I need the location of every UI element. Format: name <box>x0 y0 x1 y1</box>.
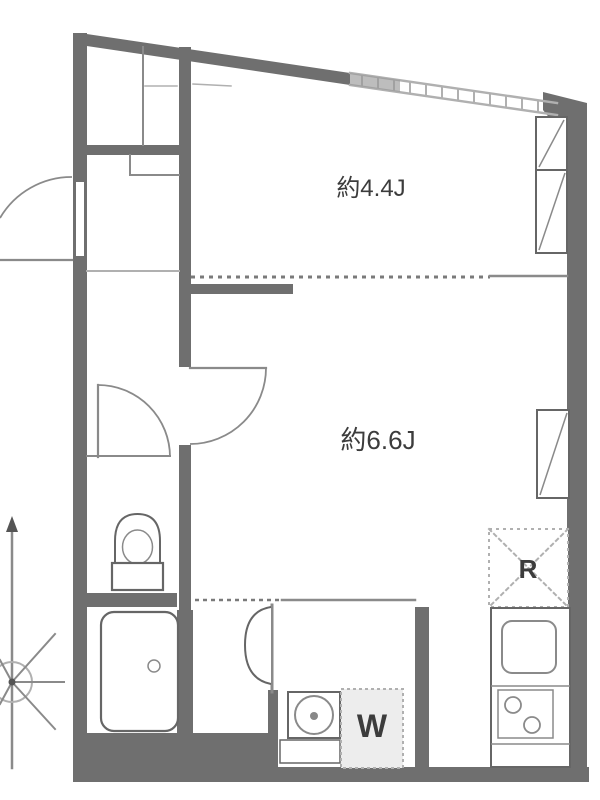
wall-hall-lower <box>179 445 191 610</box>
refrigerator-space: R <box>489 529 568 607</box>
entrance-opening <box>76 182 84 256</box>
floor-plan: W R 約 <box>0 0 600 800</box>
windows <box>536 117 569 498</box>
wall-hall-upper <box>179 47 191 367</box>
toilet <box>112 514 163 590</box>
laundry-sink-drain <box>310 712 318 720</box>
wall-top-slanted <box>80 33 350 85</box>
wall-closet-bottom <box>87 145 179 155</box>
room-door-swing-arc <box>190 368 266 444</box>
wall-washroom-stub <box>268 690 278 768</box>
compass-north-arrow <box>6 516 18 532</box>
toilet-tank <box>112 563 163 590</box>
room-door <box>190 368 266 444</box>
laundry-sink <box>280 692 340 763</box>
window-upper-bottom <box>536 170 567 253</box>
entrance-door <box>0 177 72 260</box>
slanted-window-band <box>350 73 557 115</box>
window-upper-top <box>536 117 567 170</box>
room-label-6-6j: 約6.6J <box>340 425 415 455</box>
slant-window-inner-line <box>350 85 557 115</box>
bathtub <box>101 612 178 731</box>
compass-center-dot <box>9 679 16 686</box>
bathroom <box>101 612 178 731</box>
wall-bath-bottom-block <box>79 733 268 768</box>
beam-line <box>193 84 231 86</box>
window-middle <box>537 410 569 498</box>
floor-plan-canvas: W R 約 <box>0 0 600 800</box>
washer-space: W <box>341 689 403 768</box>
washbasin-bowl <box>245 607 271 684</box>
wall-room-divider-stub <box>188 284 293 294</box>
entrance-door-swing-arc <box>0 177 72 218</box>
laundry-sink-cabinet <box>280 740 340 763</box>
kitchen-counter <box>491 608 570 767</box>
kitchen: R <box>489 529 570 767</box>
doors <box>0 177 266 457</box>
toilet-bowl <box>115 514 160 566</box>
compass <box>0 516 64 768</box>
wall-toilet-bath-divider <box>87 593 177 607</box>
wall-bottom <box>73 767 589 782</box>
wall-left <box>73 33 87 782</box>
wall-kitchen-left <box>415 607 429 767</box>
washer-label: W <box>357 708 388 744</box>
room-label-4-4j: 約4.4J <box>336 175 405 202</box>
toilet-door-swing-arc <box>98 385 170 457</box>
partition-lines <box>87 47 567 600</box>
refrigerator-label: R <box>519 554 538 584</box>
toilet-door <box>98 385 170 457</box>
